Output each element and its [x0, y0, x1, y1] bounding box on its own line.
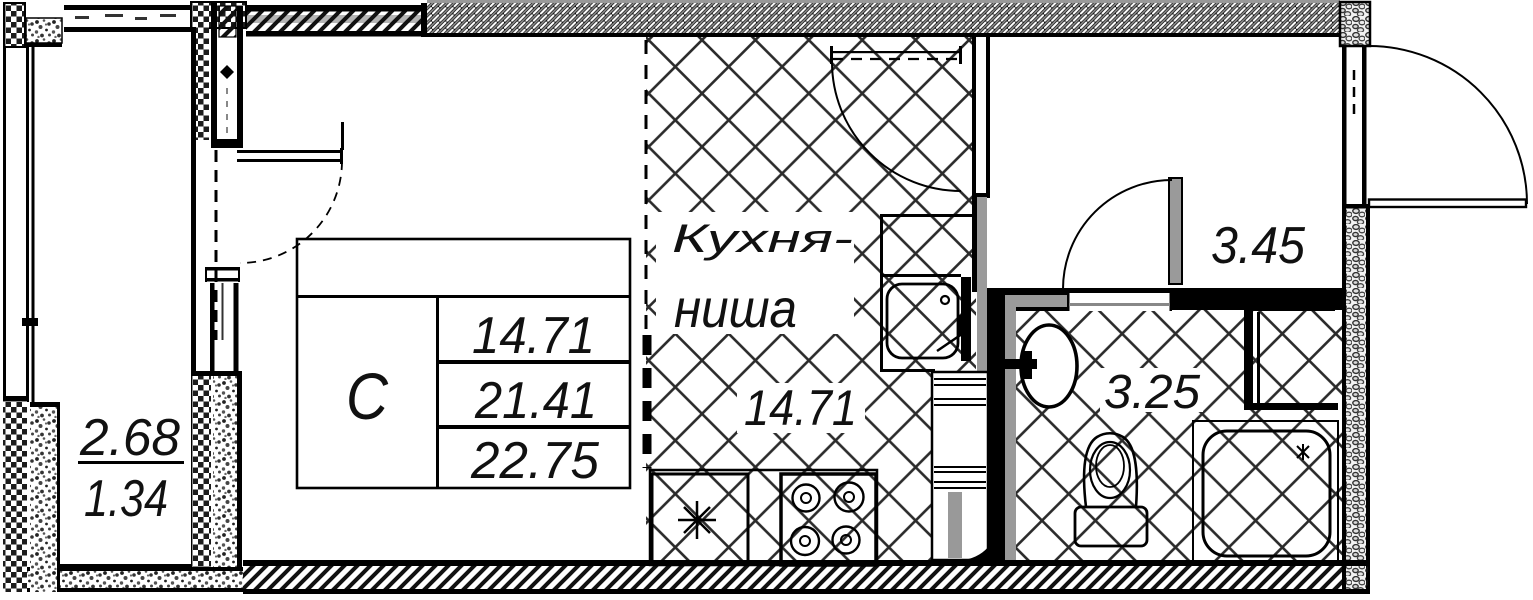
svg-text:3.45: 3.45 — [1211, 217, 1306, 275]
svg-text:14.71: 14.71 — [744, 380, 857, 436]
svg-text:21.41: 21.41 — [474, 372, 597, 430]
svg-text:ниша: ниша — [674, 279, 797, 339]
svg-text:22.75: 22.75 — [470, 432, 600, 490]
svg-text:3.25: 3.25 — [1104, 366, 1200, 419]
svg-text:14.71: 14.71 — [472, 307, 595, 365]
svg-text:1.34: 1.34 — [84, 470, 168, 528]
svg-text:Кухня-: Кухня- — [672, 217, 853, 261]
svg-text:2.68: 2.68 — [79, 409, 180, 467]
svg-text:C: C — [346, 359, 389, 433]
